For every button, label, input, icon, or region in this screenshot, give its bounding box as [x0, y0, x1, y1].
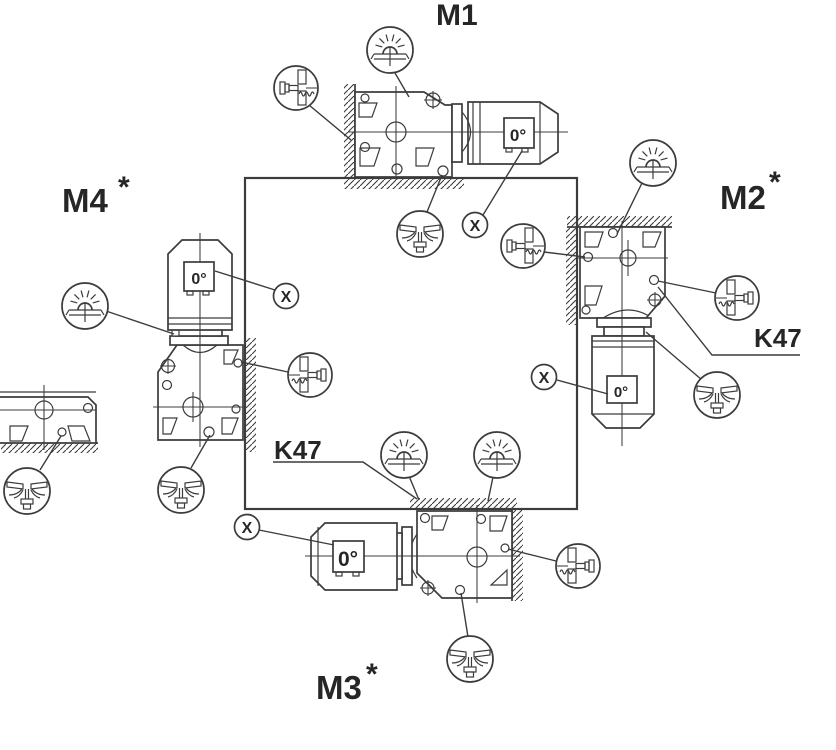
- oil-level-plug-icon: [501, 224, 545, 268]
- m2-flange-plate: [597, 318, 651, 327]
- frag-plug-bottom: [58, 428, 66, 436]
- oil-drain-plug-icon: [397, 211, 443, 257]
- frag-floor-hatch: [1, 443, 98, 453]
- m1-wall-hatch: [344, 84, 355, 178]
- label-k47-bottom: K47: [274, 435, 322, 465]
- label-m4-note: *: [118, 171, 130, 204]
- label-k47-right: K47: [754, 323, 802, 353]
- oil-drain-plug-icon: [4, 468, 50, 514]
- breather-valve-icon: [367, 27, 413, 73]
- breather-valve-icon: [630, 140, 676, 186]
- m2-x-label: X: [539, 370, 550, 387]
- label-m3: M3: [316, 669, 362, 706]
- m2-flange-plate2: [604, 327, 644, 336]
- unit-partial-left: [0, 385, 98, 514]
- m4-x-label: X: [281, 289, 292, 306]
- unit-m4: 0° X: [62, 233, 332, 513]
- oil-drain-plug-icon: [158, 467, 204, 513]
- m4-output-flange: [170, 336, 228, 345]
- m3-wall-hatch: [512, 509, 523, 601]
- frag-body-outline: [0, 397, 96, 443]
- oil-level-plug-icon: [715, 276, 759, 320]
- m2-terminal-angle: 0°: [614, 384, 628, 401]
- breather-valve-icon: [474, 432, 520, 478]
- unit-m3: 0° X: [235, 432, 601, 682]
- breather-valve-icon: [381, 432, 427, 478]
- unit-m1: 0° X: [274, 27, 568, 257]
- label-m2-note: *: [769, 166, 781, 199]
- m1-output-flange: [452, 104, 462, 162]
- frag-plug-right: [84, 404, 93, 413]
- m2-ceiling-hatch: [567, 216, 672, 227]
- oil-drain-plug-icon: [447, 636, 493, 682]
- m2-wall-hatch: [566, 227, 577, 325]
- m4-terminal-angle: 0°: [191, 271, 206, 288]
- m3-ceiling-hatch: [410, 498, 517, 509]
- m4-wall-hatch: [245, 338, 256, 452]
- oil-drain-plug-icon: [694, 372, 740, 418]
- frag-casting-pockets: [10, 426, 90, 441]
- m3-terminal-angle: 0°: [338, 548, 358, 571]
- m3-x-label: X: [242, 520, 253, 537]
- oil-level-plug-icon: [274, 66, 318, 110]
- oil-level-plug-icon: [288, 353, 332, 397]
- breather-valve-icon: [62, 283, 108, 329]
- label-m1: M1: [436, 0, 478, 32]
- gearmotor-mounting-position-diagram: 0° X 0° X: [0, 0, 836, 750]
- diagram-canvas: 0° X 0° X: [0, 0, 836, 750]
- label-m3-note: *: [366, 658, 378, 691]
- m1-x-label: X: [470, 218, 481, 235]
- label-m4: M4: [62, 182, 108, 219]
- oil-level-plug-icon: [556, 544, 600, 588]
- m1-terminal-angle: 0°: [510, 126, 526, 145]
- m1-floor-hatch: [344, 178, 464, 189]
- label-m2: M2: [720, 179, 766, 216]
